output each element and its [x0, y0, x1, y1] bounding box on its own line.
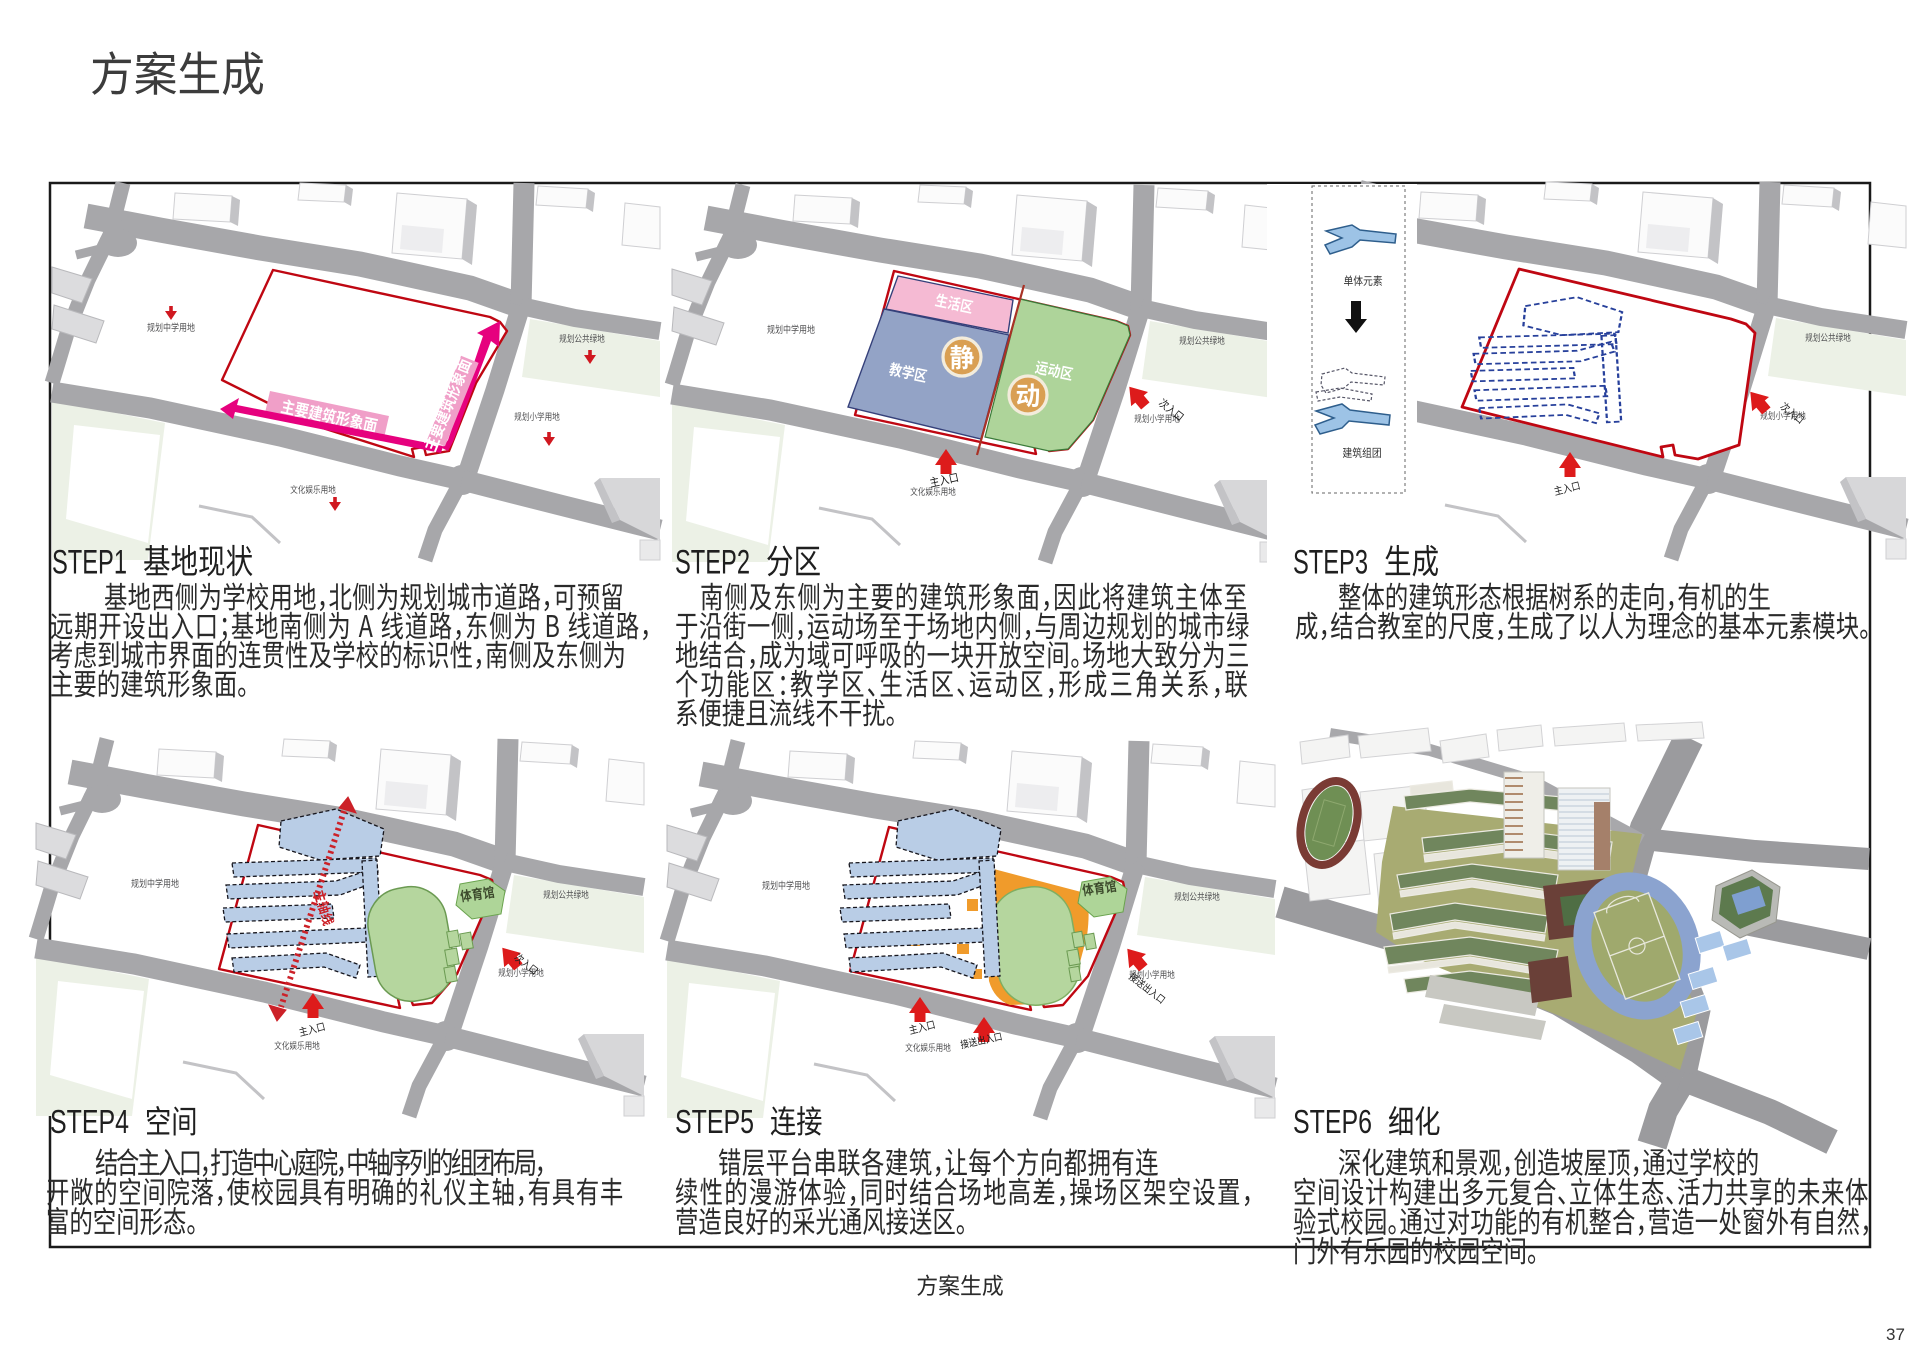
svg-text:STEP3: STEP3 — [1293, 544, 1368, 582]
svg-text:STEP4: STEP4 — [50, 1103, 129, 1140]
svg-text:STEP1: STEP1 — [52, 544, 127, 582]
svg-text:37: 37 — [1886, 1325, 1905, 1344]
svg-text:STEP2: STEP2 — [675, 544, 750, 582]
svg-text:STEP5: STEP5 — [675, 1103, 754, 1140]
svg-text:STEP6: STEP6 — [1293, 1103, 1372, 1140]
